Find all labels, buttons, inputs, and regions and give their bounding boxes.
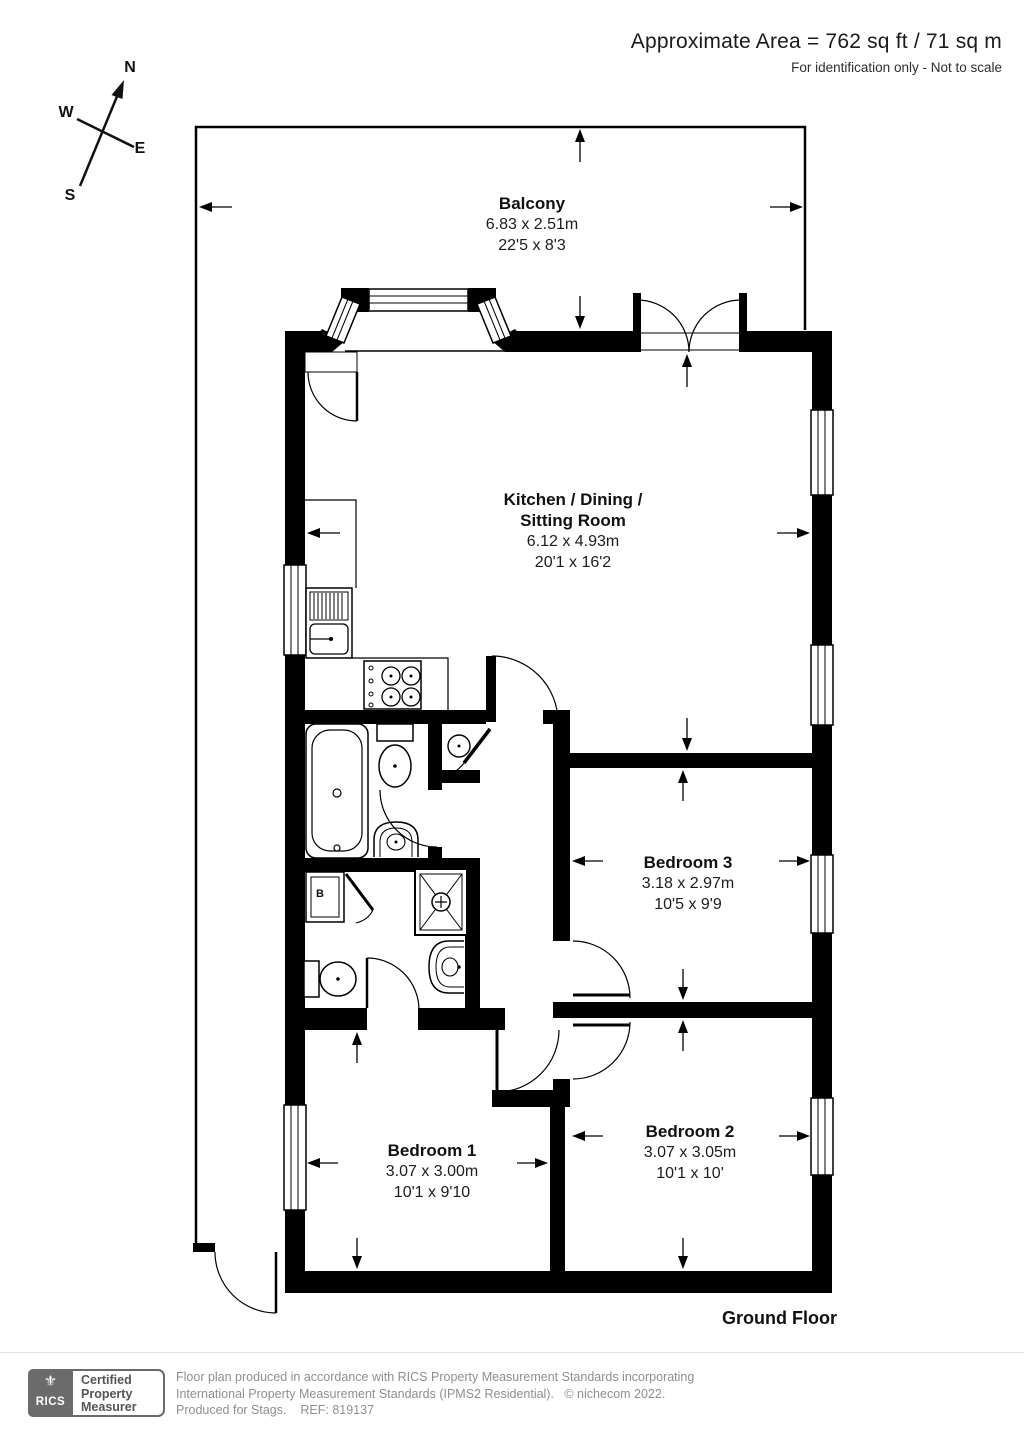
room-name: Balcony (486, 193, 579, 214)
certified-property-measurer-badge: Certified Property Measurer (73, 1369, 165, 1417)
bedroom3-label: Bedroom 3 3.18 x 2.97m 10'5 x 9'9 (642, 852, 735, 915)
room-dim-metric: 6.12 x 4.93m (504, 531, 643, 552)
footer-line-3: Produced for Stags. REF: 819137 (176, 1402, 736, 1419)
footer-divider (0, 1352, 1024, 1353)
approximate-area-text: Approximate Area = 762 sq ft / 71 sq m (631, 30, 1002, 54)
kitchen-fixtures (305, 500, 448, 710)
room-dim-imperial: 10'1 x 10' (644, 1163, 737, 1184)
room-dim-metric: 3.07 x 3.05m (644, 1142, 737, 1163)
rics-logo: ⚜ RICS (28, 1369, 73, 1417)
room-dim-imperial: 10'1 x 9'10 (386, 1182, 479, 1203)
boiler-label: B (310, 888, 330, 900)
room-dim-imperial: 10'5 x 9'9 (642, 894, 735, 915)
cert-line: Measurer (81, 1401, 163, 1415)
disclaimer-text: For identification only - Not to scale (631, 60, 1002, 75)
room-name: Kitchen / Dining / Sitting Room (504, 489, 643, 531)
room-dim-imperial: 20'1 x 16'2 (504, 552, 643, 573)
hob-icon (364, 661, 421, 709)
bedroom2-label: Bedroom 2 3.07 x 3.05m 10'1 x 10' (644, 1121, 737, 1184)
compass-west-label: W (58, 104, 73, 122)
rics-logo-text: RICS (28, 1396, 73, 1409)
floor-name-label: Ground Floor (722, 1308, 837, 1329)
room-dim-imperial: 22'5 x 8'3 (486, 235, 579, 256)
shower-icon (415, 869, 467, 935)
rics-emblem-icon: ⚜ (28, 1373, 73, 1391)
wc-basin-icon (448, 735, 470, 757)
bathroom-fixtures (306, 724, 470, 858)
room-name: Bedroom 1 (386, 1140, 479, 1161)
cert-line: Certified (81, 1374, 163, 1388)
footer-line-1: Floor plan produced in accordance with R… (176, 1369, 736, 1386)
toilet-icon (377, 724, 413, 787)
kitchen-label: Kitchen / Dining / Sitting Room 6.12 x 4… (504, 489, 643, 573)
basin-icon (374, 822, 418, 857)
compass-rose-icon (77, 80, 134, 186)
bathtub-icon (306, 724, 368, 858)
toilet-icon (304, 961, 356, 997)
room-dim-metric: 6.83 x 2.51m (486, 214, 579, 235)
footer-text: Floor plan produced in accordance with R… (176, 1369, 736, 1419)
room-dim-metric: 3.18 x 2.97m (642, 873, 735, 894)
basin-icon (429, 941, 464, 993)
cert-line: Property (81, 1388, 163, 1402)
room-name: Bedroom 3 (642, 852, 735, 873)
compass-north-label: N (124, 59, 136, 77)
compass-east-label: E (135, 140, 146, 158)
sink-unit-icon (306, 588, 352, 658)
compass-south-label: S (65, 187, 76, 205)
bedroom1-label: Bedroom 1 3.07 x 3.00m 10'1 x 9'10 (386, 1140, 479, 1203)
header: Approximate Area = 762 sq ft / 71 sq m F… (631, 30, 1002, 75)
room-dim-metric: 3.07 x 3.00m (386, 1161, 479, 1182)
room-name: Bedroom 2 (644, 1121, 737, 1142)
balcony-label: Balcony 6.83 x 2.51m 22'5 x 8'3 (486, 193, 579, 256)
footer-line-2: International Property Measurement Stand… (176, 1386, 736, 1403)
